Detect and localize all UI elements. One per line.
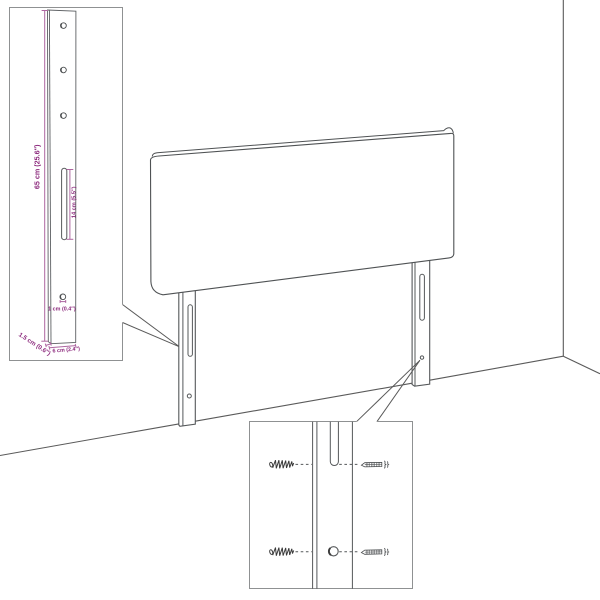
svg-text:1 cm (0.4″): 1 cm (0.4″) bbox=[48, 306, 76, 312]
svg-text:65 cm (25.6″): 65 cm (25.6″) bbox=[32, 144, 41, 189]
svg-text:14 cm (5.5″): 14 cm (5.5″) bbox=[72, 186, 78, 218]
